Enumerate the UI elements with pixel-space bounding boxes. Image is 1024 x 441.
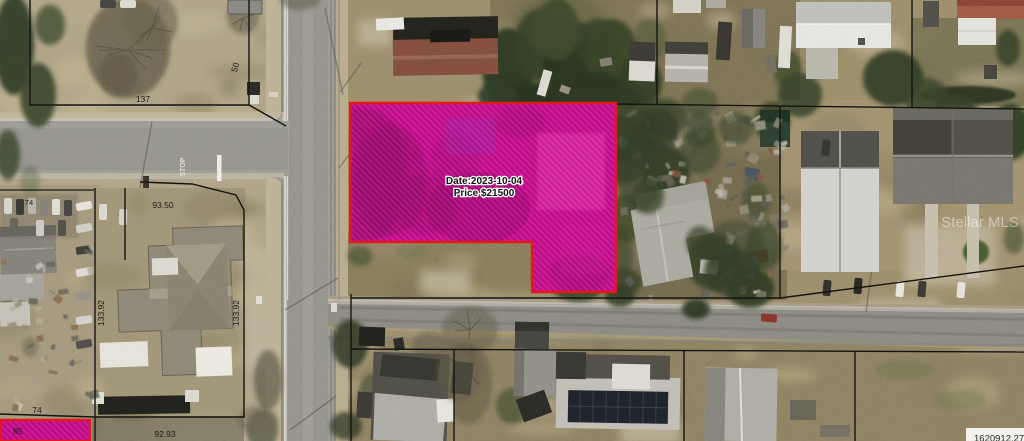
- svg-text:Date:2023-10-04: Date:2023-10-04: [446, 176, 523, 187]
- svg-text:133.92: 133.92: [231, 300, 241, 326]
- svg-text:92.93: 92.93: [154, 429, 176, 439]
- svg-text:93.50: 93.50: [152, 200, 174, 210]
- svg-text:1620912.27: 1620912.27: [974, 434, 1024, 441]
- svg-text:74: 74: [32, 405, 42, 415]
- svg-text:74: 74: [25, 198, 33, 207]
- svg-text:Price $21500: Price $21500: [454, 188, 515, 199]
- svg-text:Stellar MLS: Stellar MLS: [941, 214, 1019, 231]
- svg-text:133.92: 133.92: [96, 300, 106, 326]
- svg-text:85: 85: [13, 426, 23, 436]
- svg-text:137: 137: [136, 94, 150, 104]
